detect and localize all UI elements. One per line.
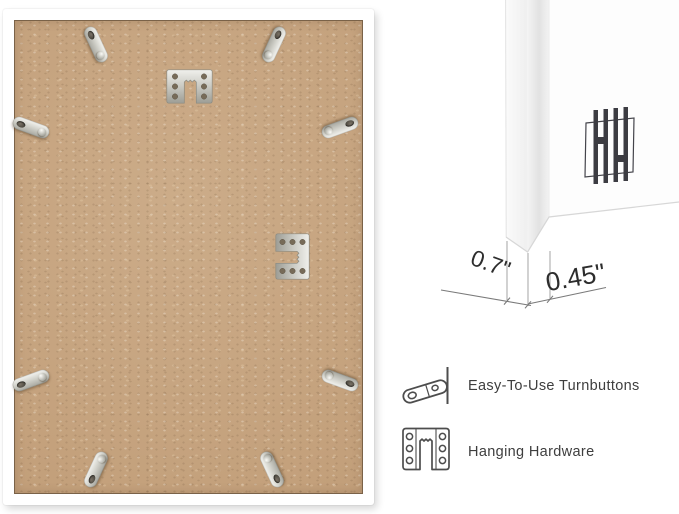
hanging-hardware-icon	[402, 427, 451, 471]
turnbutton-hole	[87, 30, 96, 41]
screw-icon	[262, 453, 273, 464]
frame-back-photo	[3, 9, 374, 505]
face-dimension-label: 0.45"	[543, 257, 607, 297]
screw-icon	[324, 371, 334, 381]
product-image: 0.7" 0.45" Easy-To-Use Turnbuttons Hangi…	[0, 0, 679, 514]
screw-icon	[37, 126, 47, 136]
turnbutton-hole	[272, 474, 281, 485]
turnbutton-hole	[274, 30, 283, 41]
screw-icon	[96, 50, 107, 61]
turnbutton-hole	[345, 120, 356, 129]
frame-corner-dimension-diagram: 0.7" 0.45"	[400, 0, 679, 330]
feature-label-turnbuttons: Easy-To-Use Turnbuttons	[468, 377, 640, 395]
sawtooth-hanger-icon	[275, 233, 310, 280]
screw-icon	[264, 50, 275, 61]
turnbutton-hole	[16, 120, 27, 129]
sawtooth-hanger-icon	[166, 69, 213, 104]
screw-icon	[96, 453, 107, 464]
frame-corner-render	[505, 0, 679, 252]
turnbutton-hole	[87, 474, 96, 485]
screw-icon	[37, 371, 47, 381]
feature-label-hanging-hardware: Hanging Hardware	[468, 443, 595, 461]
turnbutton-hole	[345, 380, 356, 389]
turnbutton-icon	[401, 365, 451, 405]
turnbutton-hole	[16, 380, 27, 389]
screw-icon	[324, 126, 334, 136]
